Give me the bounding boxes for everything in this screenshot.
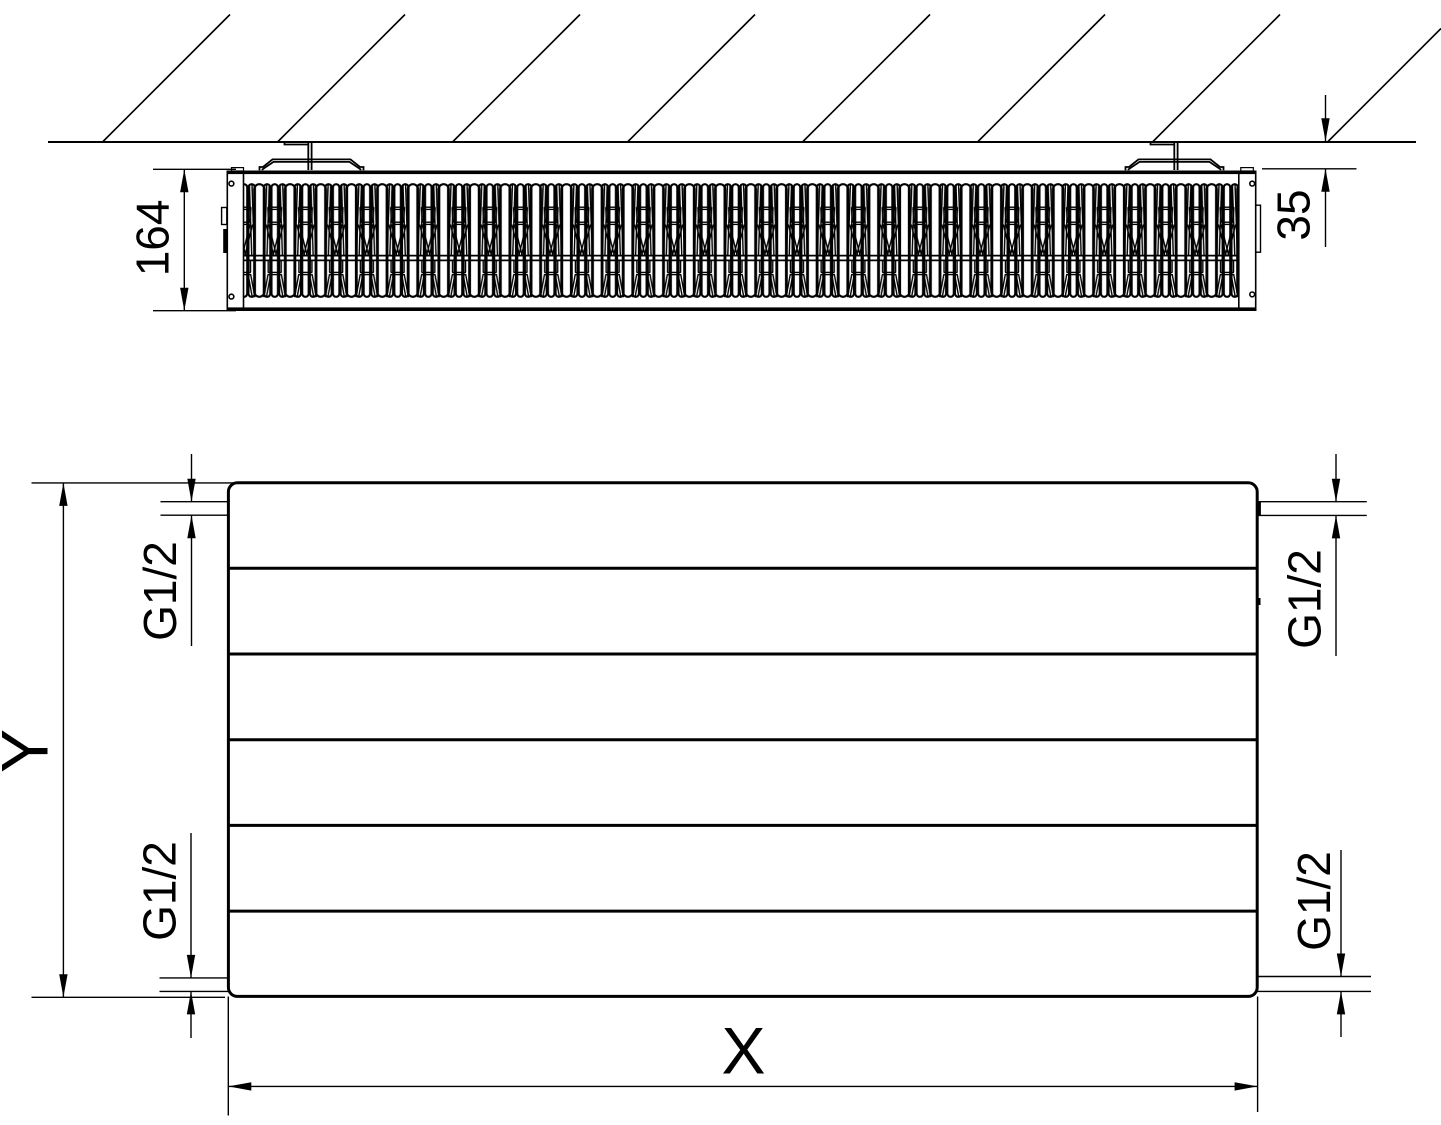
svg-text:Y: Y	[0, 729, 62, 773]
svg-text:35: 35	[1268, 189, 1320, 240]
svg-text:G1/2: G1/2	[1288, 851, 1340, 951]
svg-text:164: 164	[127, 200, 179, 277]
svg-text:G1/2: G1/2	[134, 541, 186, 641]
svg-text:G1/2: G1/2	[1279, 549, 1331, 649]
svg-text:G1/2: G1/2	[134, 841, 186, 941]
svg-text:X: X	[721, 1014, 765, 1088]
